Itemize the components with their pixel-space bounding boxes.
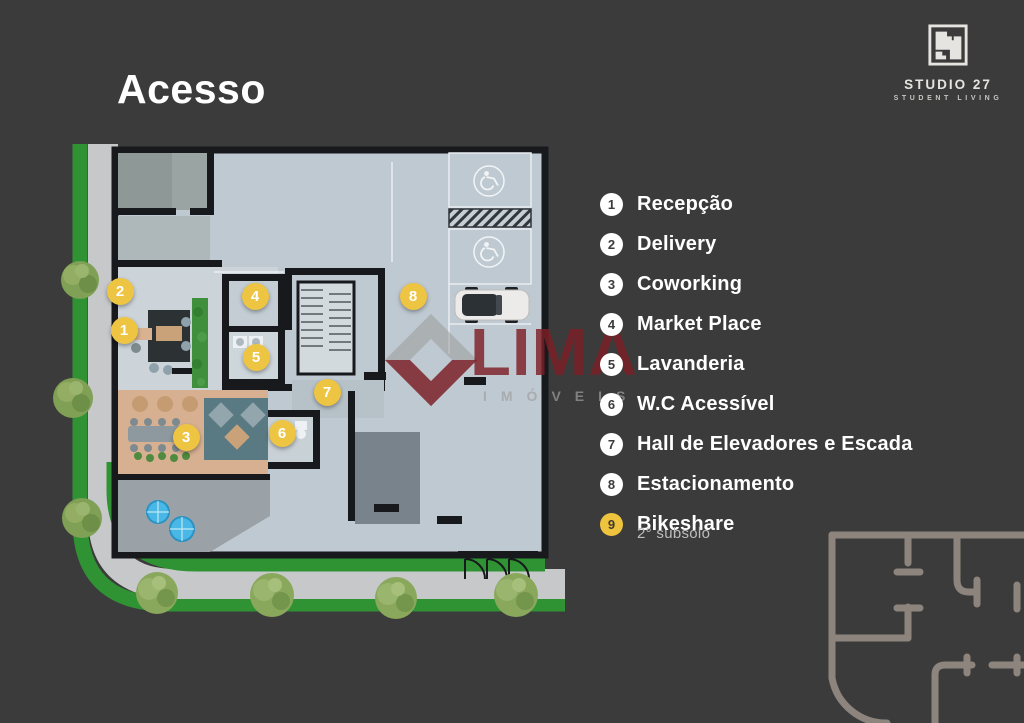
legend-item-5: 5Lavanderia xyxy=(600,352,913,378)
plan-marker-8: 8 xyxy=(400,283,427,310)
legend-number-badge: 6 xyxy=(600,393,623,416)
legend-label: Coworking xyxy=(637,272,742,297)
legend-item-6: 6W.C Acessível xyxy=(600,392,913,418)
legend-label: Lavanderia xyxy=(637,352,745,377)
brand-name: STUDIO 27 xyxy=(904,77,992,92)
plan-marker-1: 1 xyxy=(111,317,138,344)
legend-number-badge: 4 xyxy=(600,313,623,336)
legend-item-8: 8Estacionamento xyxy=(600,472,913,498)
legend-item-3: 3Coworking xyxy=(600,272,913,298)
tree xyxy=(250,573,294,617)
legend-item-2: 2Delivery xyxy=(600,232,913,258)
umbrella xyxy=(170,517,194,541)
page: Acesso STUDIO 27 STUDENT LIVING xyxy=(0,0,1024,723)
hatched-zone xyxy=(449,209,531,227)
legend-label: Market Place xyxy=(637,312,762,337)
legend-number-badge: 2 xyxy=(600,233,623,256)
legend-label: Hall de Elevadores e Escada xyxy=(637,432,913,457)
legend-number-badge: 3 xyxy=(600,273,623,296)
corner-blueprint-sketch xyxy=(820,525,1024,723)
plan-marker-4: 4 xyxy=(242,283,269,310)
legend-number-badge: 9 xyxy=(600,513,623,536)
legend-note: 2° subsolo xyxy=(637,525,913,542)
tree xyxy=(136,572,178,614)
tree xyxy=(494,573,538,617)
studio27-logo-icon xyxy=(925,24,971,71)
legend-number-badge: 7 xyxy=(600,433,623,456)
legend-item-4: 4Market Place xyxy=(600,312,913,338)
brand-tagline: STUDENT LIVING xyxy=(894,95,1003,102)
legend-label: Delivery xyxy=(637,232,716,257)
tree xyxy=(375,577,417,619)
legend-number-badge: 8 xyxy=(600,473,623,496)
legend-label: W.C Acessível xyxy=(637,392,774,417)
floor-plan xyxy=(52,132,572,632)
legend-item-1: 1Recepção xyxy=(600,192,913,218)
umbrella xyxy=(147,501,169,523)
legend-label: Estacionamento xyxy=(637,472,794,497)
legend: 1Recepção2Delivery3Coworking4Market Plac… xyxy=(600,192,913,542)
legend-label: Recepção xyxy=(637,192,733,217)
legend-number-badge: 1 xyxy=(600,193,623,216)
tree xyxy=(62,498,102,538)
tree xyxy=(61,261,99,299)
building xyxy=(110,150,545,555)
plan-marker-7: 7 xyxy=(314,379,341,406)
tree xyxy=(53,378,93,418)
plan-marker-5: 5 xyxy=(243,344,270,371)
legend-number-badge: 5 xyxy=(600,353,623,376)
car xyxy=(455,287,529,323)
plan-marker-6: 6 xyxy=(269,420,296,447)
page-title: Acesso xyxy=(117,66,266,113)
stairwell xyxy=(298,282,354,374)
legend-item-7: 7Hall de Elevadores e Escada xyxy=(600,432,913,458)
plan-marker-3: 3 xyxy=(173,424,200,451)
plan-marker-2: 2 xyxy=(107,278,134,305)
brand-logo: STUDIO 27 STUDENT LIVING xyxy=(888,24,1008,102)
